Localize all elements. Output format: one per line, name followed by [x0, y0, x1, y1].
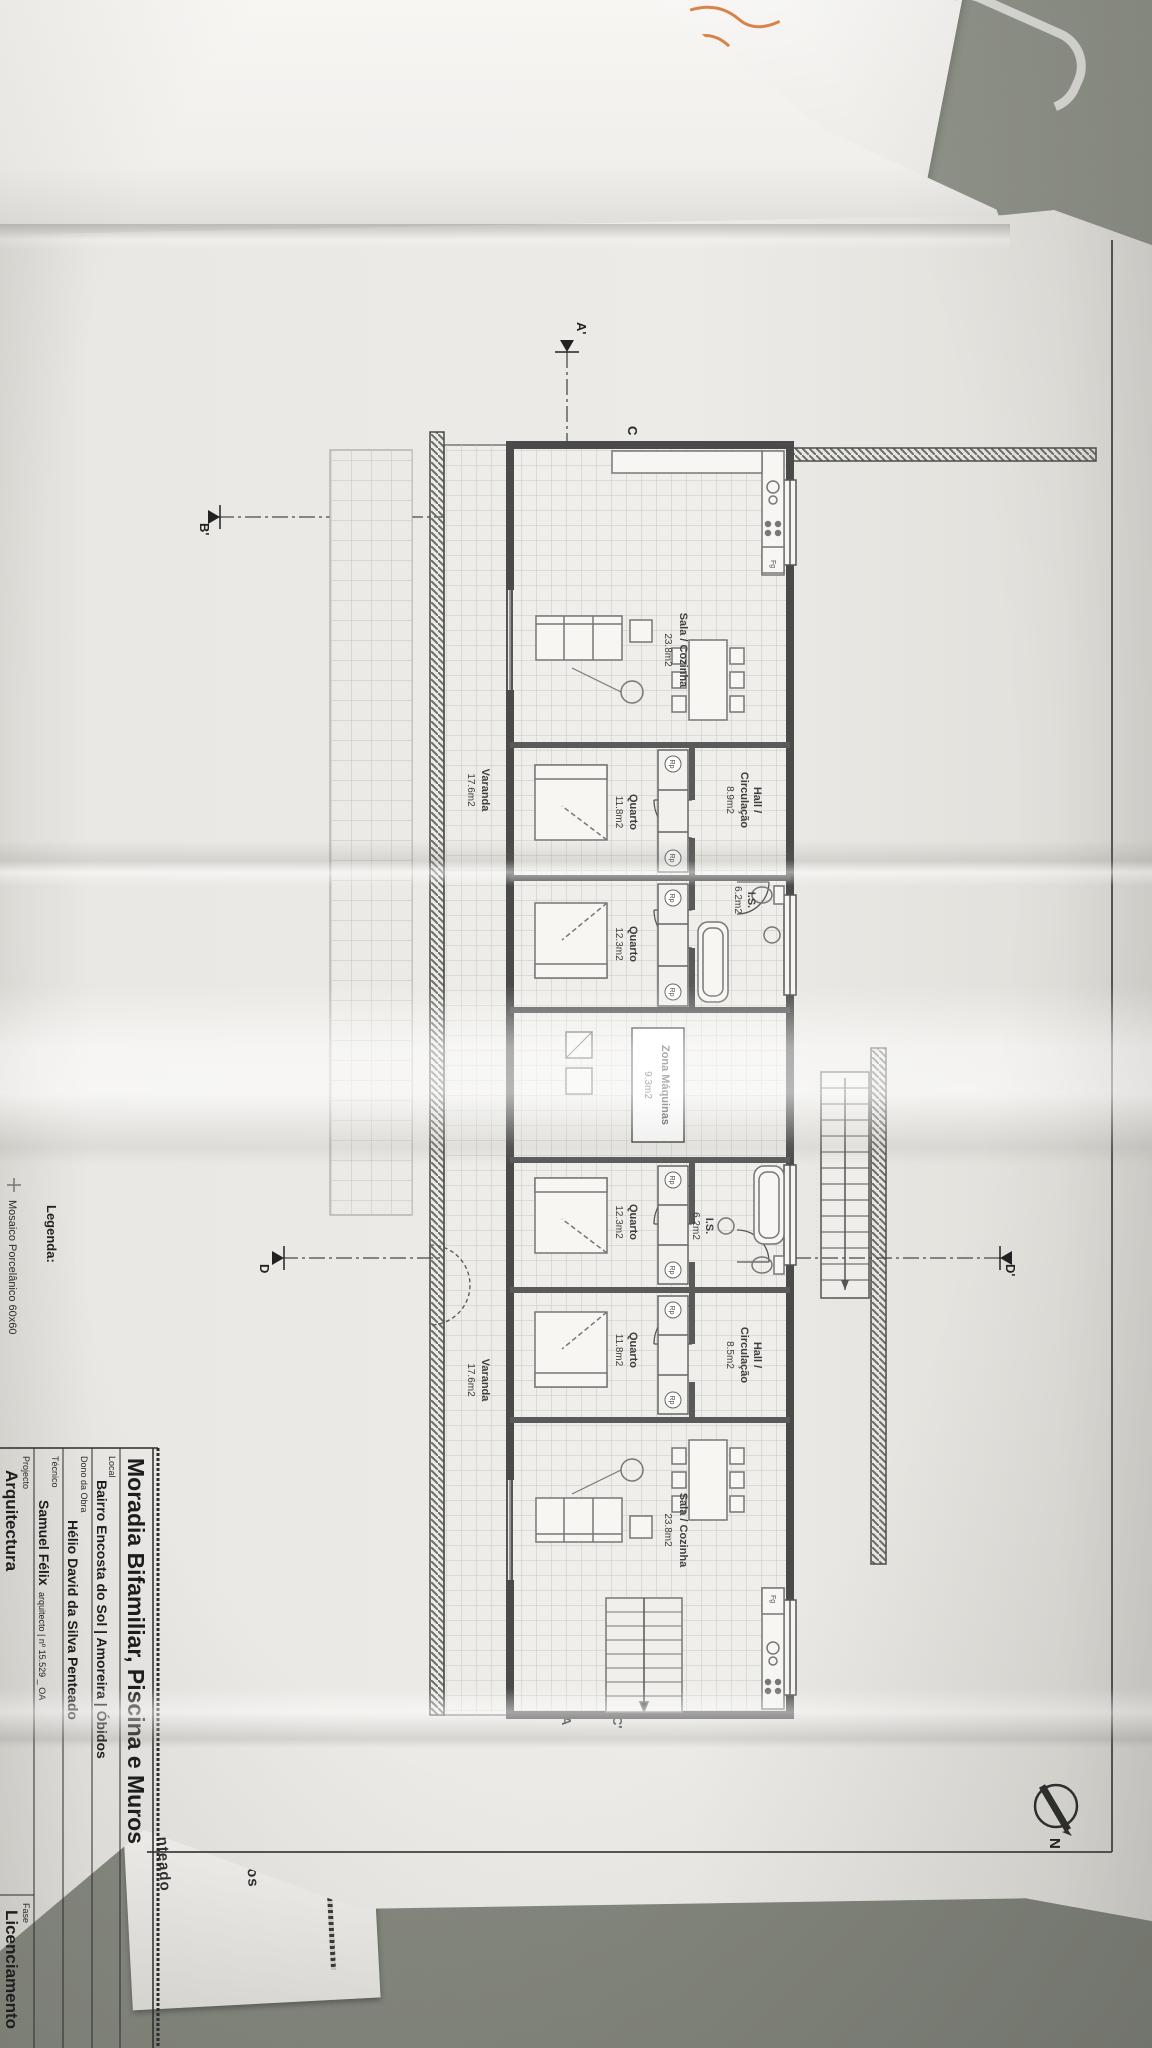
photo-vignette — [0, 0, 1152, 2048]
photo-of-floor-plan: { "photo": { "desk_color": "#8b8e84", "p… — [0, 0, 1152, 2048]
